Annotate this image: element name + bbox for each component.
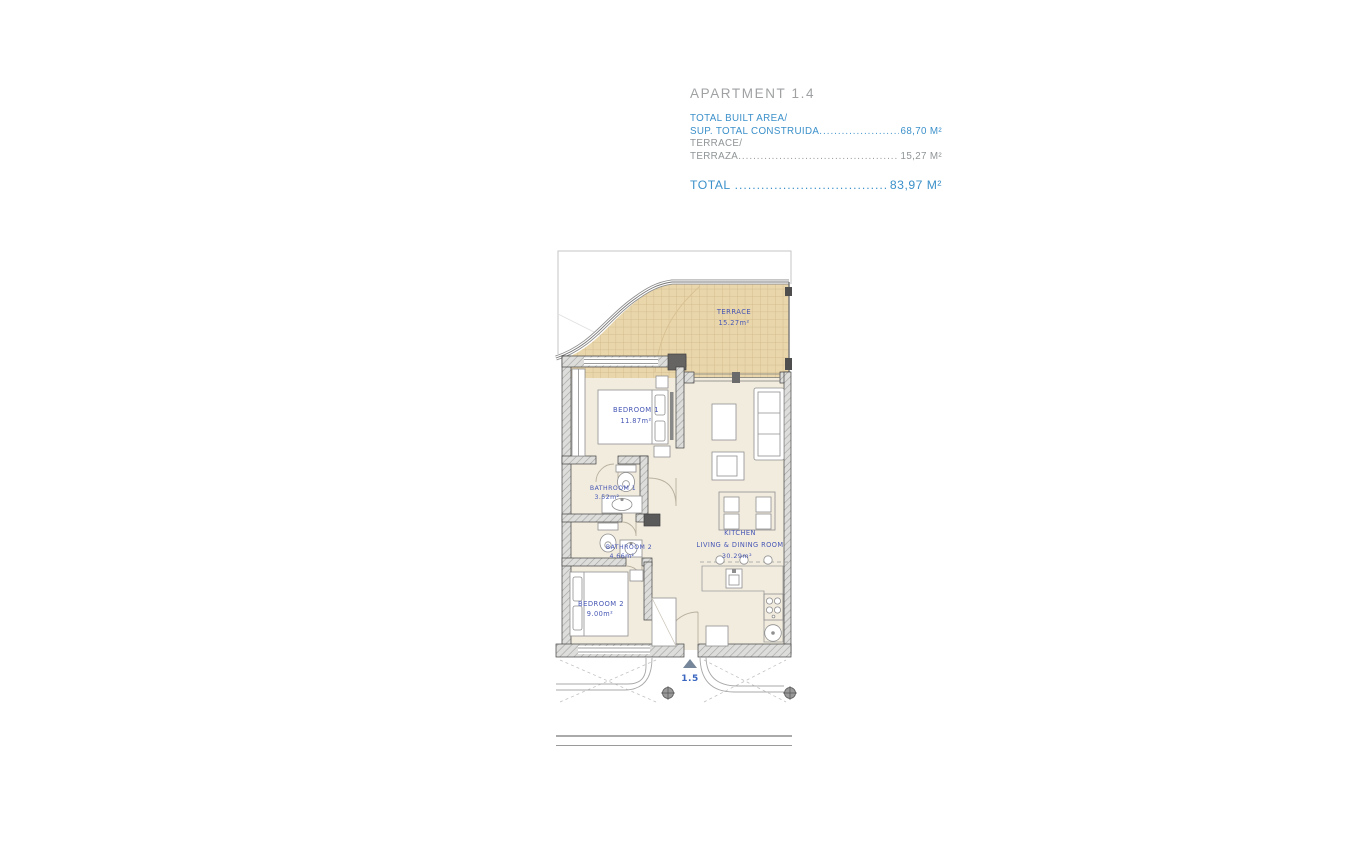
dot-leader: ........................................… (738, 151, 898, 164)
column-icon (785, 358, 792, 370)
column-icon (785, 287, 792, 296)
wall-junction (644, 514, 660, 526)
total-area-row: TOTAL ..................................… (690, 178, 942, 192)
wall-right (784, 372, 791, 654)
room-area: 3.52m² (595, 494, 620, 501)
tv-icon (670, 392, 674, 440)
total-label: TOTAL (690, 178, 735, 192)
page: APARTMENT 1.4 TOTAL BUILT AREA/ SUP. TOT… (0, 0, 1360, 850)
kitchen-sink-icon (726, 569, 742, 588)
chair-icon (724, 497, 739, 512)
pillow-icon (573, 606, 582, 630)
window-bedroom2 (578, 646, 650, 654)
room-name: KITCHEN (724, 529, 756, 537)
dot-leader: ........................................… (735, 178, 888, 192)
apartment-info-panel: APARTMENT 1.4 TOTAL BUILT AREA/ SUP. TOT… (690, 86, 942, 192)
terrace-area-value: 15,27 M² (899, 151, 942, 164)
floor-plan: 1.5 TERRACE 15.27m² BEDROOM 1 11.87m² BA… (548, 242, 804, 758)
built-area-row: TOTAL BUILT AREA/ SUP. TOTAL CONSTRUIDA … (690, 113, 942, 138)
built-area-label-en: TOTAL BUILT AREA/ (690, 113, 942, 126)
wall-stub (684, 372, 694, 383)
void-cross (704, 660, 786, 702)
void-cross (560, 660, 656, 702)
pillow-icon (655, 421, 665, 441)
built-area-value: 68,70 M² (899, 126, 942, 139)
room-name: LIVING & DINING ROOM (696, 541, 783, 549)
wall-bathroom1-top (562, 456, 596, 464)
nightstand-icon (656, 376, 668, 388)
room-area: 30.29m² (722, 552, 752, 560)
lower-site-markings (556, 656, 797, 746)
window-terrace-slider (694, 372, 780, 383)
sofa-icon (754, 388, 784, 460)
terrace-label-en: TERRACE/ (690, 138, 942, 151)
pillow-icon (573, 577, 582, 601)
room-name: TERRACE (716, 308, 751, 316)
column-marker-icon (783, 686, 797, 700)
window-bedroom1 (584, 358, 658, 366)
room-name: BEDROOM 1 (613, 406, 659, 414)
room-name: BEDROOM 2 (578, 600, 624, 608)
wall-bathroom2-top (562, 514, 622, 522)
dot-leader: ........................................… (819, 126, 898, 139)
chair-icon (724, 514, 739, 529)
room-area: 9.00m² (587, 610, 613, 618)
nightstand-icon (654, 446, 670, 457)
floor-plan-drawing: 1.5 TERRACE 15.27m² BEDROOM 1 11.87m² BA… (548, 242, 804, 758)
terrace-label-es: TERRAZA (690, 151, 738, 164)
wall-bedroom1-right (676, 367, 684, 448)
total-value: 83,97 M² (888, 178, 942, 192)
faucet-icon (621, 498, 623, 500)
terrace-area-row: TERRACE/ TERRAZA .......................… (690, 138, 942, 163)
entrance-marker: 1.5 (681, 659, 698, 684)
room-name: BATHROOM 1 (590, 485, 636, 492)
appliance-icon (706, 626, 728, 646)
chair-icon (756, 514, 771, 529)
nightstand-icon (630, 570, 643, 581)
entrance-arrow-icon (683, 659, 697, 668)
toilet-tank-icon (616, 465, 636, 472)
apartment-title: APARTMENT 1.4 (690, 86, 942, 101)
room-area: 4.66m² (610, 553, 635, 560)
room-area: 11.87m² (620, 417, 651, 425)
entrance-label: 1.5 (681, 674, 698, 684)
built-area-label-es: SUP. TOTAL CONSTRUIDA (690, 126, 819, 139)
chair-icon (756, 497, 771, 512)
room-name: BATHROOM 2 (606, 544, 652, 551)
column-marker-icon (661, 686, 675, 700)
coffee-table-icon (712, 404, 736, 440)
wall-bedroom2-right (644, 562, 652, 620)
toilet-tank-icon (598, 523, 618, 530)
room-area: 15.27m² (718, 319, 749, 327)
